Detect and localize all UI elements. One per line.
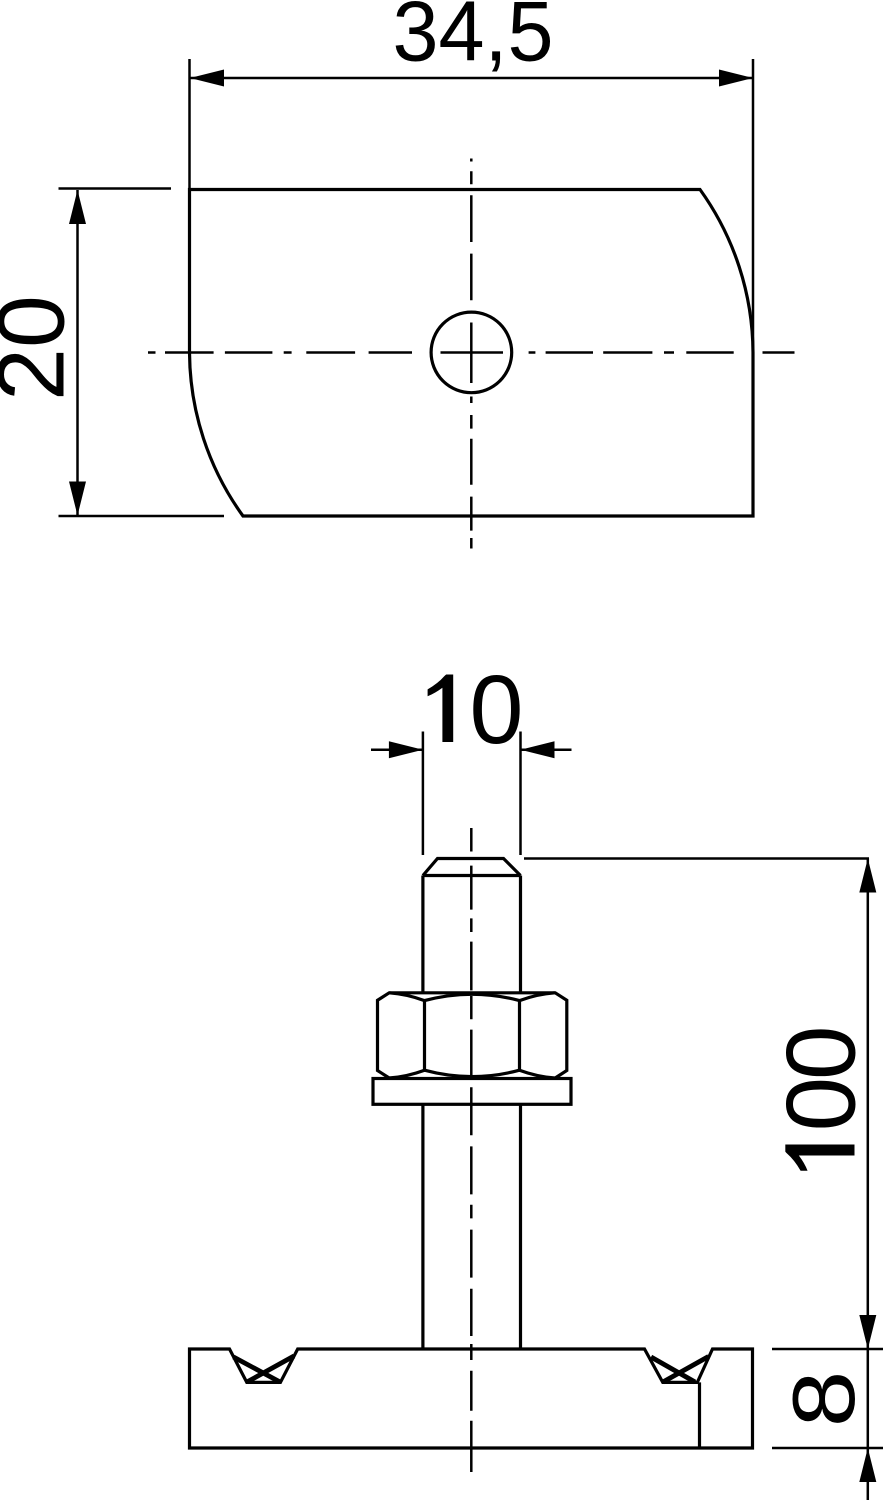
svg-text:0: 0 (766, 1026, 876, 1081)
svg-text:34,5: 34,5 (393, 0, 554, 80)
svg-text:0: 0 (766, 1077, 876, 1132)
svg-text:8: 8 (774, 1371, 873, 1428)
svg-text:0: 0 (470, 655, 524, 764)
svg-text:20: 20 (0, 295, 85, 401)
